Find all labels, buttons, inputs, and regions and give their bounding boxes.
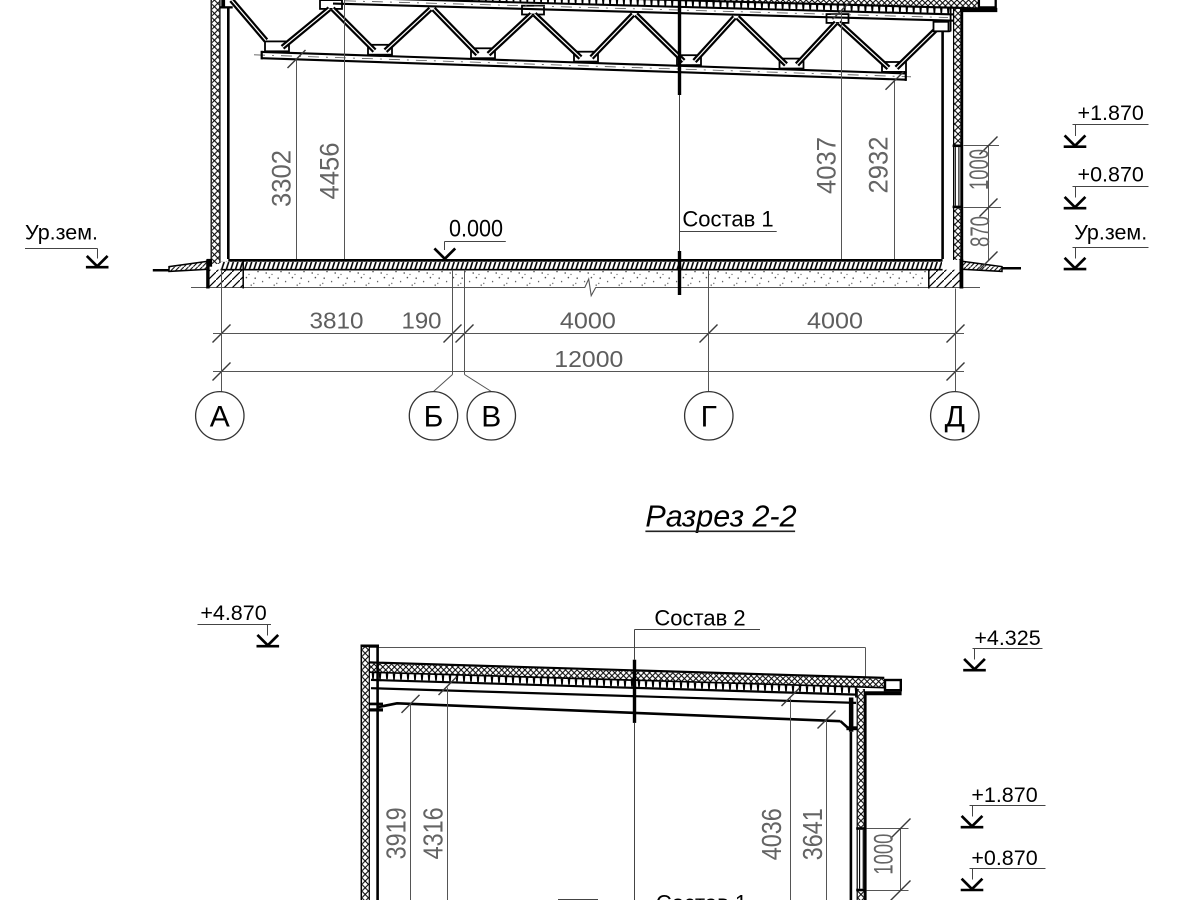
svg-text:4036: 4036 <box>756 808 787 860</box>
svg-text:В: В <box>481 400 501 433</box>
svg-text:+4.870: +4.870 <box>200 601 266 625</box>
svg-text:Состав 1: Состав 1 <box>656 891 747 900</box>
svg-text:4037: 4037 <box>812 137 842 194</box>
svg-text:+1.870: +1.870 <box>971 783 1037 807</box>
svg-text:+0.870: +0.870 <box>971 846 1037 870</box>
svg-text:0.000: 0.000 <box>449 216 503 243</box>
svg-text:870: 870 <box>965 216 995 247</box>
svg-text:3302: 3302 <box>267 150 297 207</box>
svg-text:Состав 1: Состав 1 <box>682 207 773 232</box>
svg-text:4316: 4316 <box>418 807 449 859</box>
svg-text:2932: 2932 <box>864 137 894 194</box>
svg-text:Д: Д <box>945 400 965 433</box>
svg-text:4456: 4456 <box>315 143 345 200</box>
svg-text:Ур.зем.: Ур.зем. <box>25 220 98 244</box>
svg-text:Ур.зем.: Ур.зем. <box>1074 220 1147 244</box>
svg-text:+4.325: +4.325 <box>974 626 1040 650</box>
svg-text:Б: Б <box>424 400 444 433</box>
svg-text:3641: 3641 <box>797 808 828 860</box>
svg-text:+0.870: +0.870 <box>1078 163 1144 187</box>
svg-text:4000: 4000 <box>807 308 863 334</box>
svg-text:Г: Г <box>701 400 717 433</box>
svg-text:1000: 1000 <box>869 834 899 875</box>
svg-text:190: 190 <box>402 308 442 334</box>
svg-text:4000: 4000 <box>560 308 616 334</box>
svg-text:Состав 2: Состав 2 <box>654 606 745 631</box>
svg-text:1000: 1000 <box>964 149 994 190</box>
svg-text:3919: 3919 <box>380 807 411 859</box>
svg-text:+1.870: +1.870 <box>1078 101 1144 125</box>
svg-text:12000: 12000 <box>554 346 623 372</box>
svg-text:А: А <box>210 400 230 433</box>
svg-text:Разрез 2-2: Разрез 2-2 <box>645 500 796 534</box>
svg-text:3810: 3810 <box>310 308 364 334</box>
